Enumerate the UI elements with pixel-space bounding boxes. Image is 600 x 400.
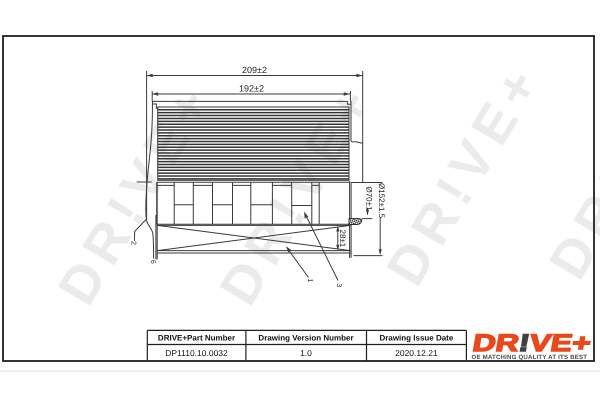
svg-text:2020.12.21: 2020.12.21 xyxy=(395,348,438,358)
svg-text:192±2: 192±2 xyxy=(239,84,264,94)
svg-text:1.0: 1.0 xyxy=(300,348,312,358)
svg-text:Ø152±1.5: Ø152±1.5 xyxy=(377,183,386,219)
svg-text:209±2: 209±2 xyxy=(242,65,267,75)
svg-text:DR!VE+: DR!VE+ xyxy=(470,330,593,357)
svg-text:6: 6 xyxy=(149,260,156,264)
svg-text:28±1: 28±1 xyxy=(338,230,347,248)
svg-text:DRIVE+Part Number: DRIVE+Part Number xyxy=(158,334,235,343)
svg-text:OE MATCHING QUALITY AT ITS BES: OE MATCHING QUALITY AT ITS BEST xyxy=(472,354,588,361)
svg-text:1: 1 xyxy=(306,279,313,283)
svg-text:Drawing Issue Date: Drawing Issue Date xyxy=(379,334,453,343)
svg-text:DP1110.10.0032: DP1110.10.0032 xyxy=(165,348,228,358)
svg-text:Ø70±1: Ø70±1 xyxy=(365,187,374,212)
svg-text:Drawing Version Number: Drawing Version Number xyxy=(258,334,353,343)
svg-text:3: 3 xyxy=(335,283,342,287)
svg-text:2: 2 xyxy=(130,241,137,245)
